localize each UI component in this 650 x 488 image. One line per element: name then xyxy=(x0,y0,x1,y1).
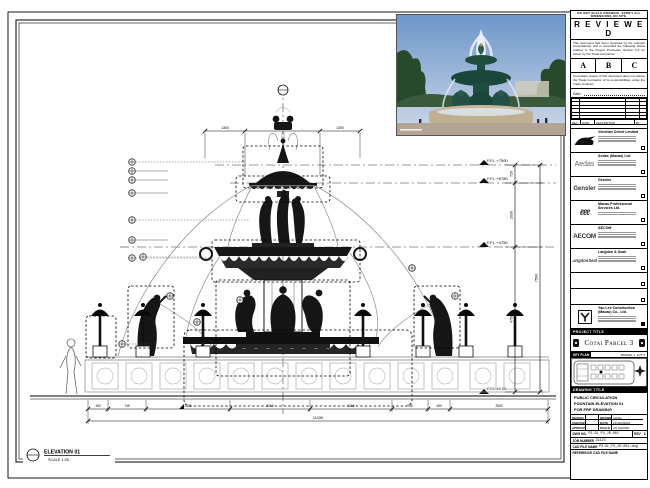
address-lines xyxy=(598,316,646,322)
status-checkbox-checked xyxy=(641,322,646,327)
rev-value: 0 xyxy=(642,431,647,437)
approved-value: - xyxy=(586,425,599,430)
project-emblem-icon xyxy=(573,339,579,347)
fountain-location-dot xyxy=(600,371,603,374)
cad-file-label: CAD FILE NAME xyxy=(571,445,599,449)
dim-label: 2210 xyxy=(266,404,273,408)
dim-label: 745 xyxy=(124,404,130,408)
status-checkbox xyxy=(641,170,646,175)
dwg-number: P3-GL_FO_JR-001 xyxy=(588,432,631,436)
ref-cad-label: REFERENCE CAD FILE NAME xyxy=(571,451,620,455)
consultant-row-gensler: Gensler Gensler xyxy=(571,177,647,201)
section-marker xyxy=(179,404,184,409)
status-checkbox xyxy=(641,266,646,271)
level-label: F.F.L +4750 xyxy=(487,240,508,245)
level-label: F.F.L +6780 xyxy=(487,176,508,181)
consultant-name: Aedas (Macau) Ltd. xyxy=(598,154,646,158)
consultant-name: Macau Professional Services Ltd. xyxy=(598,202,646,210)
yaulee-logo xyxy=(572,306,597,327)
key-plan-map xyxy=(571,358,647,387)
key-plan-note: PARCEL 1, LOT 2 xyxy=(591,352,647,357)
address-lines xyxy=(598,212,646,215)
stamp-date-line: Date : xyxy=(571,89,647,98)
consultant-row-aedas: Aedas Aedas (Macau) Ltd. xyxy=(571,153,647,177)
project-title: Cotai Parcel 3 xyxy=(571,335,647,352)
review-status-options: A B C xyxy=(571,59,647,73)
status-checkbox xyxy=(641,146,646,151)
dim-label: 2115 xyxy=(185,404,192,408)
contractor-name: Yau Lee Construction (Macau) Co., Ltd. xyxy=(598,306,646,314)
consultant-row-langdonseah: LangdonSeah Langdon & Seah xyxy=(571,249,647,273)
consultant-name: AECOM xyxy=(598,226,646,230)
dwg-label: DWG NO. xyxy=(571,432,588,436)
view-scale-text: SCALE 1:25 xyxy=(48,458,69,462)
approved-label: APPROVED xyxy=(571,425,586,430)
photo-watermark xyxy=(400,129,422,131)
reviewed-stamp-body1: This document has been reviewed by the r… xyxy=(571,40,647,59)
cad-file-name: P3-GL_FO_JR-001.dwg xyxy=(599,445,647,449)
consultant-name: Gensler xyxy=(598,178,646,182)
reviewed-stamp-body2: Consultant review of this document does … xyxy=(571,73,647,89)
status-option-a: A xyxy=(571,59,596,73)
address-lines xyxy=(598,160,646,166)
bottom-dimension: 450 745 2115 2210 2115 745 450 2500 1133… xyxy=(86,400,550,424)
consultant-row-aecom: AECOM AECOM xyxy=(571,225,647,249)
status-checkbox xyxy=(641,298,646,303)
scale-label: SCALE xyxy=(599,425,612,430)
dim-label: 2030 xyxy=(510,211,514,219)
dim-label: 2500 xyxy=(495,404,502,408)
dim-label: 1300 xyxy=(336,126,344,130)
address-lines xyxy=(598,184,646,190)
address-lines xyxy=(598,256,646,262)
gensler-logo: Gensler xyxy=(572,178,597,199)
level-label: F.F.L +7500 xyxy=(487,158,508,163)
status-checkbox xyxy=(641,194,646,199)
date-label: Date : xyxy=(573,92,582,96)
level-markers xyxy=(479,160,489,394)
dim-label: 1300 xyxy=(221,126,229,130)
right-dimension: 720 2030 4750 7500 xyxy=(505,163,543,394)
dim-label: 450 xyxy=(95,404,101,408)
drawing-sheet: F.F.L +7500 F.F.L +6780 F.F.L +4750 F.F.… xyxy=(0,0,650,488)
aecom-logo: AECOM xyxy=(572,226,597,247)
reviewed-stamp-title: R E V I E W E D xyxy=(571,19,647,40)
venetian-logo xyxy=(572,130,597,151)
photo-pavement xyxy=(397,123,565,135)
consultant-row-venetian: Venetian Orient Limited xyxy=(571,129,647,153)
dim-label: 720 xyxy=(510,171,514,177)
job-label: JOB NUMBER xyxy=(571,439,595,443)
status-checkbox xyxy=(641,242,646,247)
rev-label: REV xyxy=(632,431,643,437)
status-checkbox xyxy=(641,218,646,223)
rev-col: REV xyxy=(571,120,581,124)
view-title-text: ELEVATION 01 xyxy=(44,450,80,456)
scale-value: AS SHOWN xyxy=(612,425,643,430)
review-log-table xyxy=(571,98,647,119)
status-checkbox xyxy=(641,282,646,287)
ref-cad-file-row: REFERENCE CAD FILE NAME xyxy=(571,450,647,456)
dwg-number-row: DWG NO. P3-GL_FO_JR-001 REV 0 xyxy=(571,431,647,438)
project-emblem-icon xyxy=(639,339,645,347)
empty-consultant-box xyxy=(571,289,647,305)
date-col: DATE xyxy=(581,120,595,124)
description-col: DESCRIPTION xyxy=(595,120,635,124)
langdonseah-logo: LangdonSeah xyxy=(572,250,597,271)
dim-label: 4750 xyxy=(510,315,514,323)
key-plan-label: KEY PLAN xyxy=(571,352,591,357)
status-option-c: C xyxy=(622,59,647,73)
dim-label: 2115 xyxy=(348,404,355,408)
credits-table: DESIGN - DRAWN CHAD CHECKED - DATE 13/JA… xyxy=(571,415,647,431)
dim-label: 7500 xyxy=(535,274,539,282)
disclaimer-strip: DO NOT SCALE DRAWING. VERIFY ALL DIMENSI… xyxy=(571,11,647,19)
consultant-name: Venetian Orient Limited xyxy=(598,130,646,134)
drawing-title: PUBLIC CIRCULATION FOUNTAIN ELEVATION 01… xyxy=(571,393,647,415)
photo-building xyxy=(515,81,549,97)
consultant-name: Langdon & Seah xyxy=(598,250,646,254)
consultant-row-mps: ℓℓℓ Macau Professional Services Ltd. xyxy=(571,201,647,225)
scale-figure xyxy=(60,339,81,394)
dim-label: 11330 xyxy=(313,416,323,420)
dim-label: 450 xyxy=(436,404,442,408)
status-option-b: B xyxy=(596,59,621,73)
aedas-logo: Aedas xyxy=(572,154,597,175)
by-col: BY xyxy=(635,120,647,124)
base-platform xyxy=(30,357,556,399)
fountain-reference-photo xyxy=(396,14,566,136)
view-title: ELEVATION 01 SCALE 1:25 xyxy=(23,447,115,463)
contractor-row-yaulee: Yau Lee Construction (Macau) Co., Ltd. xyxy=(571,305,647,329)
address-lines xyxy=(598,136,646,142)
mps-logo: ℓℓℓ xyxy=(572,202,597,223)
title-block: DO NOT SCALE DRAWING. VERIFY ALL DIMENSI… xyxy=(570,10,648,480)
drawing-title-line: FOR FRP DRAWING xyxy=(574,407,644,413)
address-lines xyxy=(598,232,646,238)
job-number: 31123 xyxy=(595,439,647,443)
empty-consultant-box xyxy=(571,273,647,289)
dim-label: 745 xyxy=(407,404,413,408)
project-title-text: Cotai Parcel 3 xyxy=(584,339,633,347)
